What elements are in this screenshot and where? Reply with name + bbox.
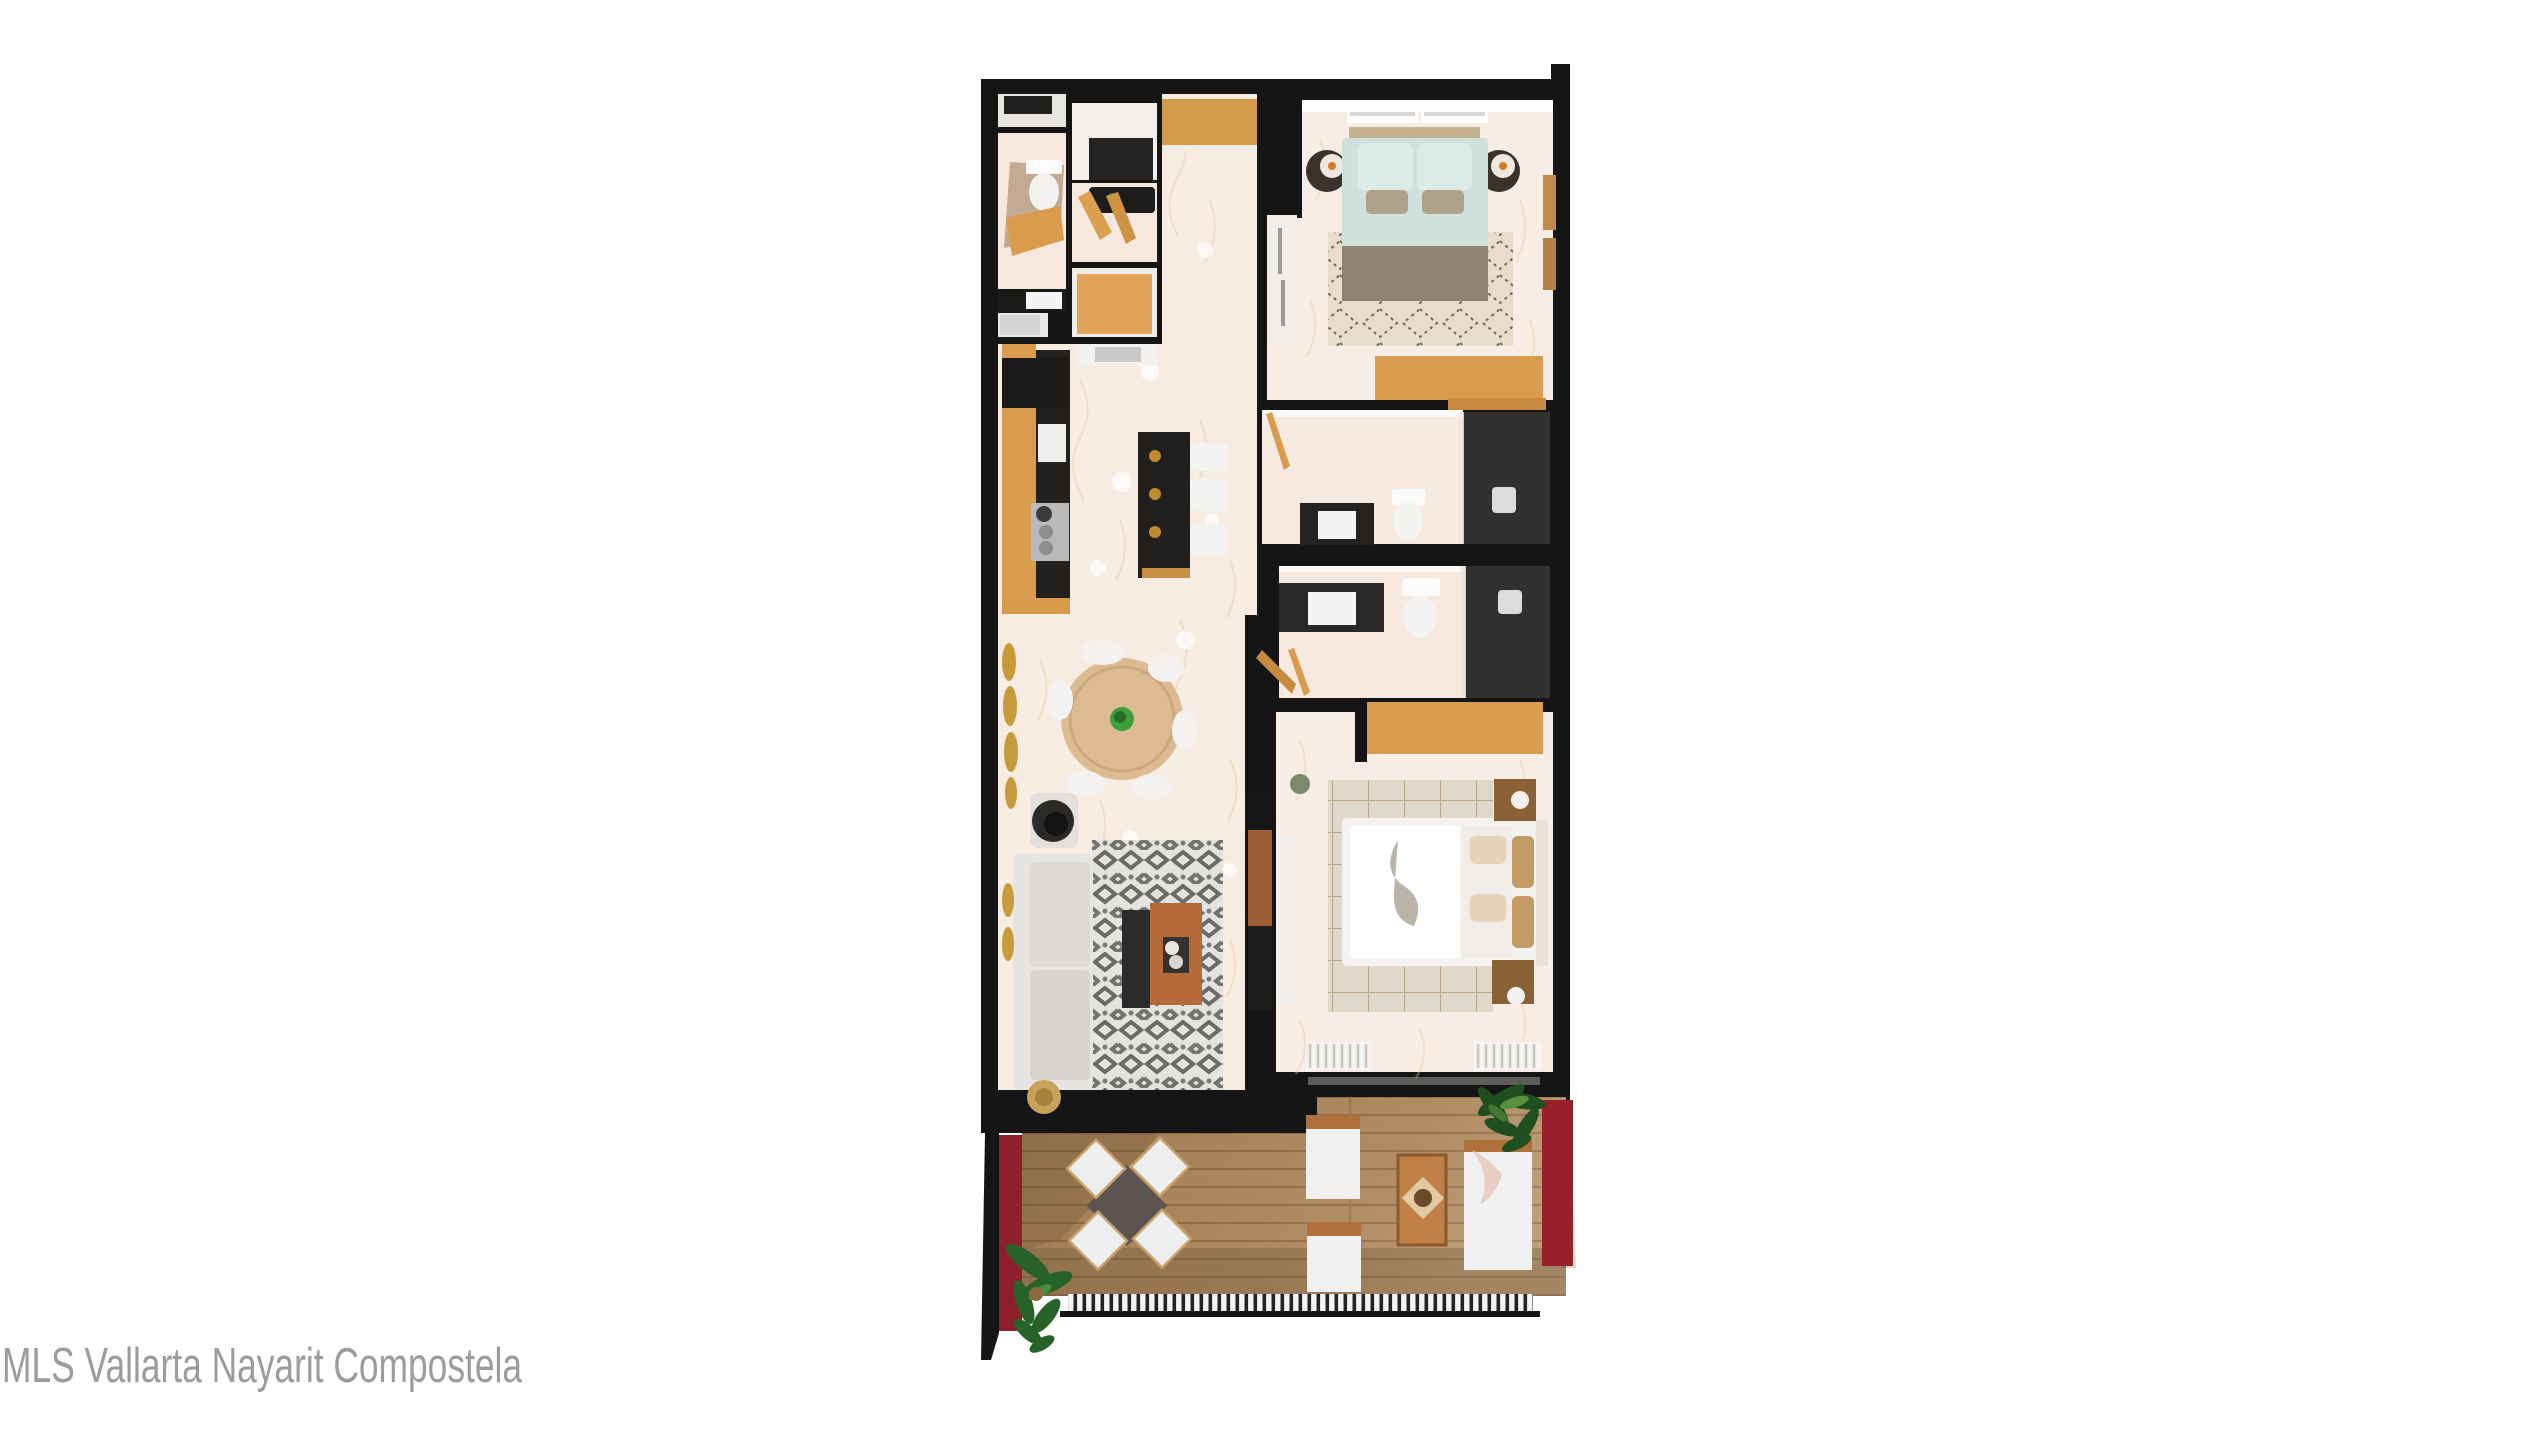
svg-text:MLS Vallarta Nayarit Compostel: MLS Vallarta Nayarit Compostela (2, 1339, 523, 1393)
